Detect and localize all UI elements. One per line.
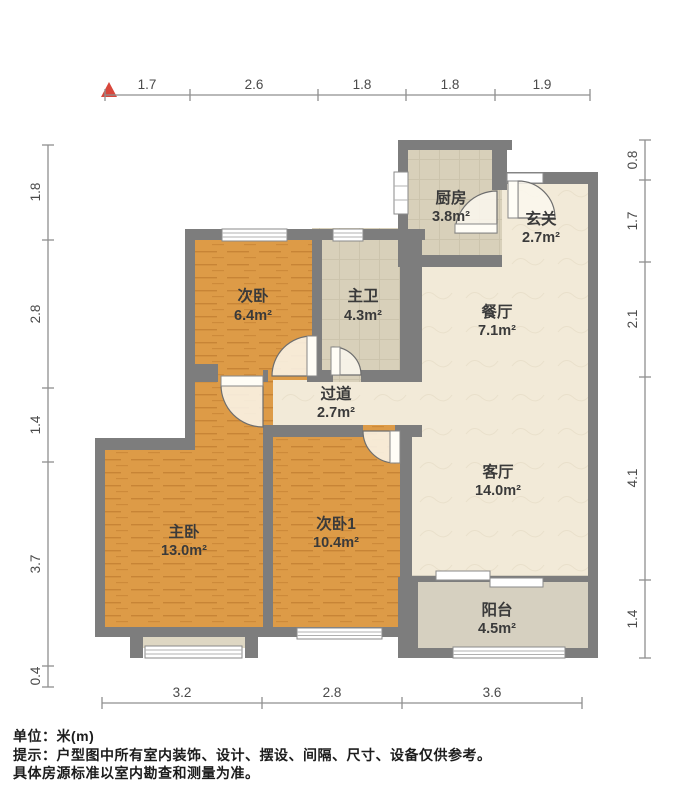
note-line-1: 提示：户型图中所有室内装饰、设计、摆设、间隔、尺寸、设备仅供参考。 <box>13 746 673 765</box>
wall <box>588 172 598 658</box>
dim-label: 1.8 <box>441 77 460 92</box>
room-label-hallway-area: 2.7m² <box>317 405 355 421</box>
door-leaf <box>307 336 317 376</box>
dim-label: 4.1 <box>625 469 640 488</box>
dim-label: 1.7 <box>625 212 640 231</box>
wall <box>398 577 418 658</box>
room-label-entry-area: 2.7m² <box>522 230 560 246</box>
dim-label: 3.6 <box>483 685 502 700</box>
room-label-balcony-area: 4.5m² <box>478 621 516 637</box>
wall <box>263 425 273 637</box>
note-line-2: 具体房源标准以室内勘查和测量为准。 <box>13 764 673 783</box>
window <box>453 647 565 658</box>
room-label-living-area: 14.0m² <box>475 483 521 499</box>
window <box>222 229 287 241</box>
window <box>333 229 363 241</box>
door-leaf <box>221 376 263 386</box>
notes: 单位：米(m) 提示：户型图中所有室内装饰、设计、摆设、间隔、尺寸、设备仅供参考… <box>13 727 673 783</box>
wall <box>185 229 425 240</box>
door-leaf <box>331 347 340 375</box>
wall <box>245 637 258 658</box>
wall <box>185 364 218 382</box>
room-label-master-bath-area: 4.3m² <box>344 308 382 324</box>
room-label-bedroom1-name: 次卧1 <box>316 514 356 533</box>
dim-label: 1.8 <box>353 77 372 92</box>
dim-label: 0.8 <box>625 151 640 170</box>
wall <box>361 370 422 382</box>
window <box>394 172 408 214</box>
window <box>297 628 382 639</box>
wall <box>263 370 268 382</box>
wall <box>263 425 363 437</box>
dim-label: 1.8 <box>28 183 43 202</box>
unit-label: 单位：米(m) <box>13 727 673 746</box>
door-leaf <box>508 181 518 218</box>
dim-label: 1.4 <box>625 609 640 628</box>
room-label-master-bath-name: 主卫 <box>347 286 379 305</box>
room-label-bedroom1-area: 10.4m² <box>313 535 359 551</box>
room-label-master-bedroom-name: 主卧 <box>168 522 200 541</box>
dim-label: 2.8 <box>28 305 43 324</box>
dim-label: 1.9 <box>533 77 552 92</box>
dimension-right: 0.8 1.7 2.1 4.1 1.4 <box>625 140 651 658</box>
wall <box>400 425 412 585</box>
dimension-top: 1.7 2.6 1.8 1.8 1.9 <box>105 77 590 101</box>
dim-label: 1.7 <box>138 77 157 92</box>
dim-label: 3.2 <box>173 685 192 700</box>
wall <box>400 238 422 382</box>
floor-plan-page: 1.7 2.6 1.8 1.8 1.9 3.2 2.8 3.6 1.8 2.8 … <box>0 0 692 800</box>
dim-label: 2.8 <box>323 685 342 700</box>
door-leaf <box>455 224 497 233</box>
wall <box>130 637 143 658</box>
dimension-bottom: 3.2 2.8 3.6 <box>102 685 582 709</box>
floor-plan: 1.7 2.6 1.8 1.8 1.9 3.2 2.8 3.6 1.8 2.8 … <box>0 0 692 800</box>
room-label-dining-area: 7.1m² <box>478 323 516 339</box>
room-label-kitchen-name: 厨房 <box>435 188 466 207</box>
wall <box>95 438 195 450</box>
room-label-dining-name: 餐厅 <box>480 302 513 321</box>
dimension-left: 1.8 2.8 1.4 3.7 0.4 <box>28 145 54 687</box>
window <box>145 646 242 658</box>
room-label-kitchen-area: 3.8m² <box>432 209 470 225</box>
room-label-master-bedroom-area: 13.0m² <box>161 543 207 559</box>
room-label-bedroom2-name: 次卧 <box>237 286 269 305</box>
door-leaf <box>390 431 400 463</box>
room-label-hallway-name: 过道 <box>320 384 352 403</box>
room-label-bedroom2-area: 6.4m² <box>234 308 272 324</box>
wall <box>185 229 195 450</box>
dim-label: 1.4 <box>28 415 43 434</box>
room-label-living-name: 客厅 <box>482 462 514 481</box>
room-label-entry-name: 玄关 <box>525 209 557 228</box>
dim-label: 0.4 <box>28 666 43 685</box>
wall <box>95 438 105 637</box>
dim-label: 2.1 <box>625 310 640 329</box>
dim-label: 2.6 <box>245 77 264 92</box>
room-label-balcony-name: 阳台 <box>481 600 512 619</box>
dim-label: 3.7 <box>28 555 43 574</box>
